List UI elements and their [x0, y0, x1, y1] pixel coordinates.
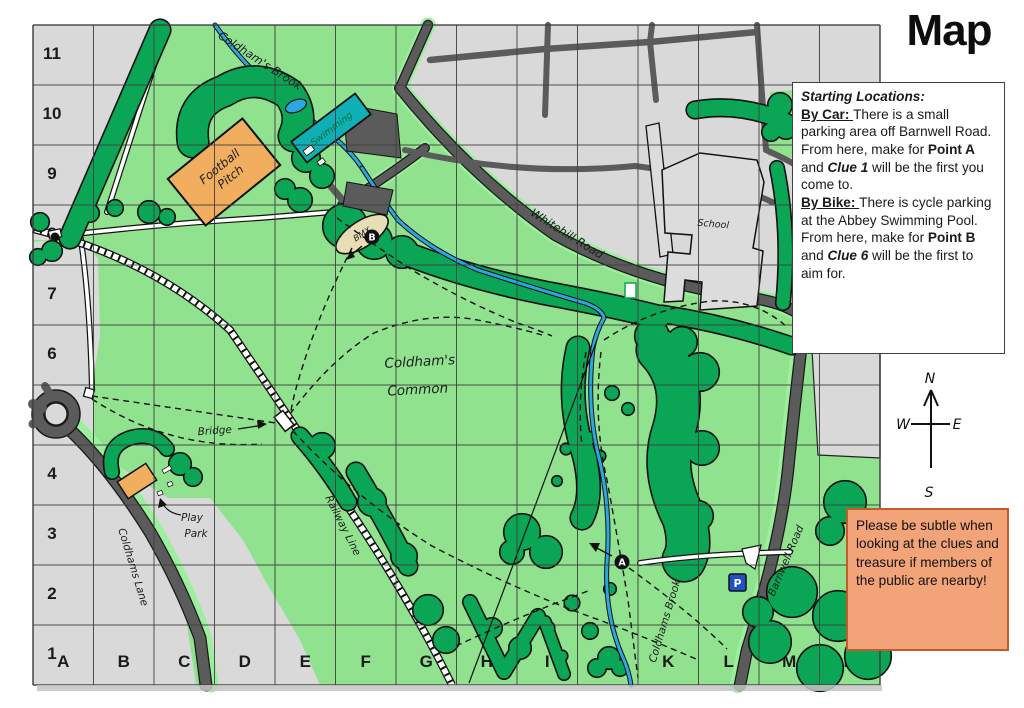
compass-east: E: [953, 417, 962, 433]
grid-row-1: 1: [47, 644, 56, 663]
tree-mass: [43, 242, 61, 260]
grid-row-6: 6: [47, 344, 56, 363]
grid-row-10: 10: [43, 104, 62, 123]
tree-mass: [817, 518, 843, 544]
starting-locations-box: Starting Locations:By Car: There is a sm…: [792, 82, 1005, 354]
grid-column-B: B: [118, 652, 130, 671]
grid-row-2: 2: [47, 584, 56, 603]
roadside-sign-icon: [625, 283, 636, 298]
compass: N W E S: [896, 371, 961, 501]
text-segment: Starting Locations:: [801, 89, 925, 104]
text-segment: Point A: [928, 142, 975, 157]
tree-mass: [668, 328, 696, 356]
text-segment: Point B: [928, 230, 976, 245]
tree-mass: [82, 205, 98, 221]
railway-crossing-dot: [51, 233, 60, 242]
svg-text:Park: Park: [184, 528, 208, 540]
tree-mass: [583, 624, 597, 638]
svg-text:Common: Common: [387, 380, 449, 399]
parking-label: P: [733, 577, 741, 590]
tree-mass: [750, 622, 790, 662]
page-title: Map: [878, 6, 1020, 56]
tree-mass: [160, 210, 174, 224]
text-segment: and: [801, 248, 827, 263]
grid-column-F: F: [361, 652, 371, 671]
text-segment: By Car:: [801, 107, 853, 122]
grid-column-A: A: [57, 652, 69, 671]
tree-mass: [623, 404, 633, 414]
tree-mass: [414, 596, 442, 624]
tree-mass: [769, 94, 791, 116]
tree-mass: [185, 469, 201, 485]
tree-mass: [553, 477, 561, 485]
tree-mass: [310, 434, 334, 458]
notice-box: Please be subtle when looking at the clu…: [846, 508, 1009, 651]
tree-mass: [569, 415, 581, 427]
point-a-label: A: [618, 558, 626, 569]
tree-mass: [501, 541, 523, 563]
gate: [83, 387, 94, 398]
tree-mass: [531, 537, 561, 567]
notice-text: Please be subtle when looking at the clu…: [856, 518, 999, 588]
grid-column-G: G: [420, 652, 433, 671]
tree-mass: [686, 432, 718, 464]
map-page: ABCDEFGHIJKLMN1234567891011: [0, 0, 1024, 708]
grid-row-9: 9: [47, 164, 56, 183]
tree-mass: [558, 652, 567, 661]
compass-west: W: [896, 417, 911, 433]
tree-mass: [434, 628, 458, 652]
tree-mass: [763, 124, 779, 140]
tree-mass: [311, 165, 333, 187]
point-b-label: B: [368, 233, 375, 244]
grid-column-C: C: [178, 652, 190, 671]
text-segment: and: [801, 160, 827, 175]
grid-row-7: 7: [47, 284, 56, 303]
grid-column-I: I: [545, 652, 550, 671]
label-play-park: Play: [181, 512, 204, 524]
text-segment: By Bike:: [801, 195, 859, 210]
tree-mass: [543, 623, 554, 634]
tree-mass: [562, 445, 571, 454]
label-bridge: Bridge: [197, 424, 232, 438]
text-segment: Clue 6: [827, 248, 868, 263]
grid-column-L: L: [724, 652, 734, 671]
grid-row-4: 4: [47, 464, 57, 483]
compass-north: N: [925, 371, 936, 387]
tree-mass: [606, 387, 618, 399]
tree-mass: [510, 638, 530, 658]
grid-row-3: 3: [47, 524, 56, 543]
compass-south: S: [925, 485, 934, 501]
tree-mass: [744, 598, 772, 626]
grid-column-D: D: [239, 652, 251, 671]
grid-row-11: 11: [43, 44, 61, 63]
tree-mass: [108, 201, 122, 215]
school-building: [662, 153, 764, 310]
tree-mass: [32, 214, 48, 230]
text-segment: Clue 1: [827, 160, 868, 175]
grid-column-K: K: [662, 652, 675, 671]
tree-mass: [276, 180, 294, 198]
tree-mass: [589, 660, 605, 676]
grid-column-E: E: [300, 652, 311, 671]
map-shadow: [37, 685, 882, 691]
